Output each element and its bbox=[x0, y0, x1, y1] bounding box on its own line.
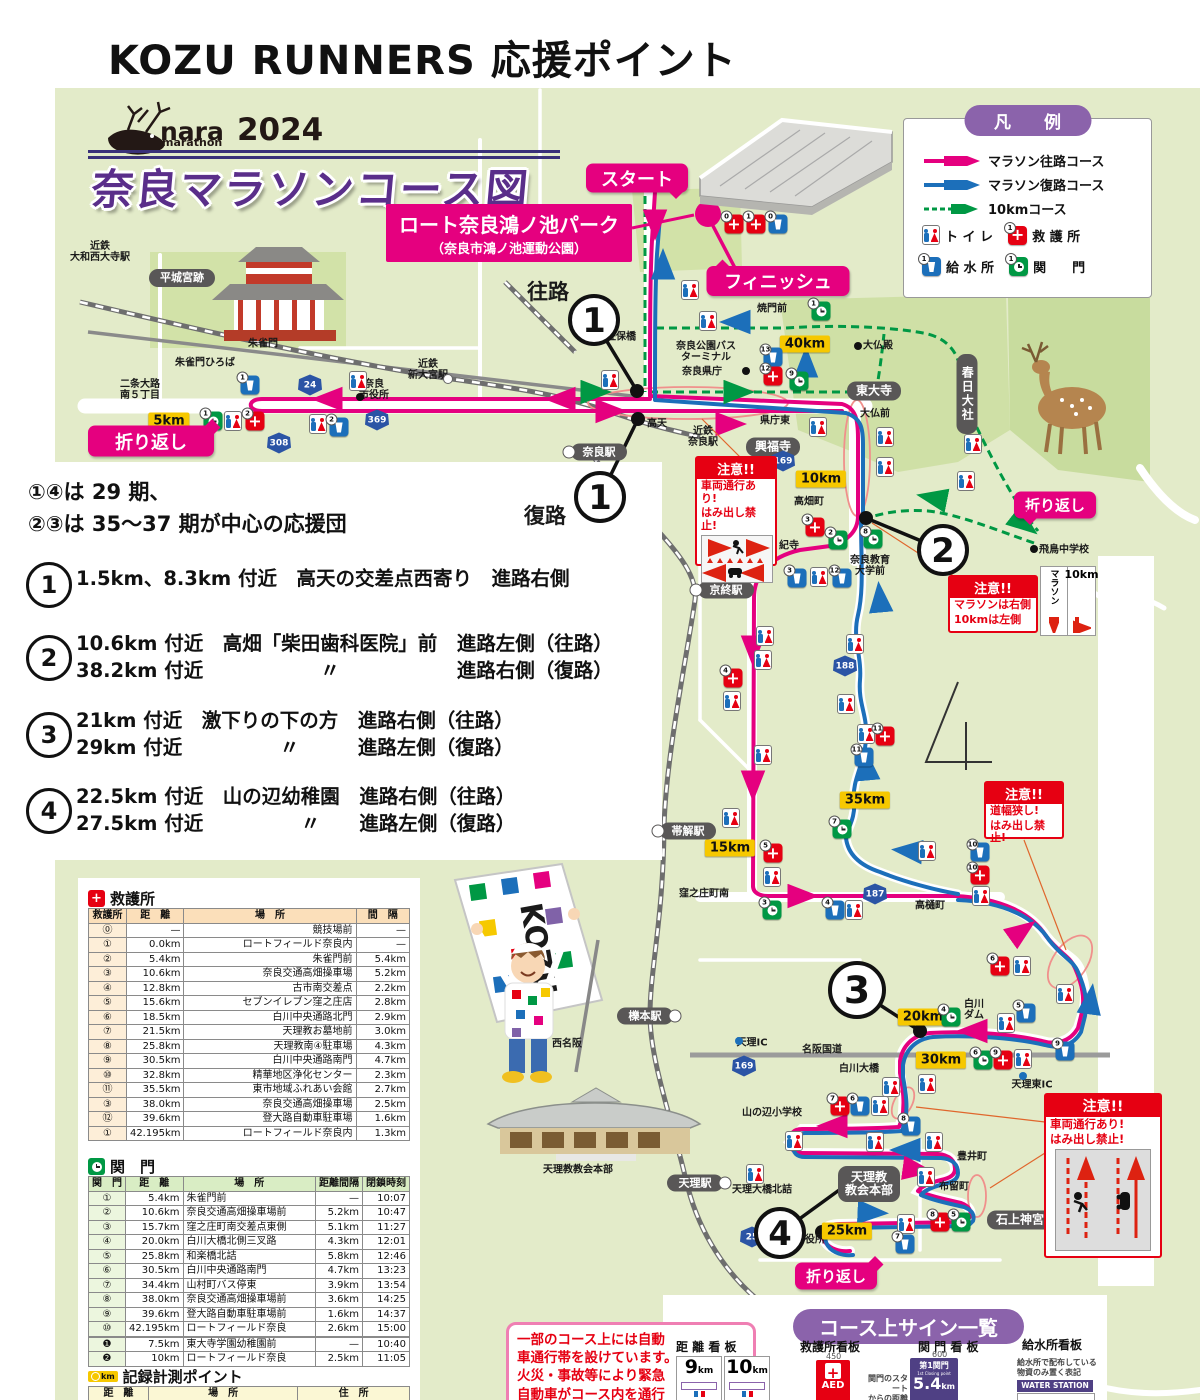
aid-station-icon: 1+ bbox=[1008, 226, 1027, 245]
map-label: 奈良公園バス ターミナル bbox=[676, 341, 736, 363]
toilet-icon bbox=[756, 626, 774, 646]
warning-title: 注意!! bbox=[950, 577, 1036, 598]
table-cell: 1.6km bbox=[316, 1307, 363, 1322]
record-point-icon: km bbox=[88, 1371, 118, 1382]
table-cell: 21.5km bbox=[126, 1025, 184, 1040]
water-station-icon: 6 bbox=[851, 1097, 870, 1116]
checkpoint-icon: 2 bbox=[829, 531, 848, 550]
toilet-icon bbox=[681, 280, 699, 300]
station-dot bbox=[669, 1010, 682, 1023]
poi-dot bbox=[356, 393, 364, 401]
table-row: ①5.4km朱雀門前—10:07 bbox=[89, 1191, 410, 1206]
table-cell: 窪之庄町南交差点東側 bbox=[183, 1220, 315, 1235]
table-cell: 10:40 bbox=[363, 1337, 410, 1352]
checkpoint-icon: 5 bbox=[952, 1213, 971, 1232]
table-title: 関 門 bbox=[88, 1156, 155, 1177]
table-cell: ロートフィールド奈良内 bbox=[184, 1126, 356, 1141]
toilet-icon bbox=[846, 634, 864, 654]
toilet-icon bbox=[871, 1096, 889, 1116]
km-badge: 35km bbox=[840, 792, 890, 809]
gate-sign-label: 関 門 看 板 bbox=[918, 1338, 979, 1355]
aid-table: 救護所距 離場 所間 隔⓪—競技場前—①0.0kmロートフィールド奈良内—②5.… bbox=[88, 908, 410, 1141]
toilet-icon bbox=[349, 371, 367, 391]
water-station-icon: 7 bbox=[896, 1235, 915, 1254]
table-cell: 登大路自動車駐車場前 bbox=[183, 1307, 315, 1322]
table-row: ⑩42.195kmロートフィールド奈良2.6km15:00 bbox=[89, 1322, 410, 1337]
course-flag-label: スタート bbox=[586, 164, 688, 193]
table-cell: 5.1km bbox=[316, 1220, 363, 1235]
table-cell: 13:23 bbox=[363, 1264, 410, 1279]
course-flag-label: フィニッシュ bbox=[707, 266, 850, 296]
table-cell: 2.5km bbox=[316, 1352, 363, 1367]
aid-station-icon: 10+ bbox=[971, 866, 990, 885]
warning-box-split: 注意!! マラソンは右側 10kmは左側 bbox=[948, 575, 1038, 633]
aid-station-icon: 5+ bbox=[764, 844, 783, 863]
table-cell: 白川大橋北側三叉路 bbox=[183, 1235, 315, 1250]
table-row: ⑫39.6km登大路自動車駐車場1.6km bbox=[89, 1112, 410, 1127]
table-cell: — bbox=[356, 923, 409, 938]
toilet-icon bbox=[876, 457, 894, 477]
toilet-icon bbox=[224, 411, 242, 431]
table-row: ⑧25.8km天理教南④駐車場4.3km bbox=[89, 1039, 410, 1054]
toilet-icon bbox=[809, 417, 827, 437]
table-cell: 11:05 bbox=[363, 1352, 410, 1367]
split-sign-10km: 10km bbox=[1064, 569, 1098, 580]
table-cell: ② bbox=[89, 952, 127, 967]
table-cell: 35.5km bbox=[126, 1083, 184, 1098]
map-label: 紀寺 bbox=[779, 540, 799, 551]
table-cell: 5.4km bbox=[126, 952, 184, 967]
toilet-icon bbox=[754, 745, 772, 765]
toilet-icon bbox=[601, 370, 619, 390]
table-cell: 12.8km bbox=[126, 981, 184, 996]
table-cell: 5.2km bbox=[356, 967, 409, 982]
nara-marathon-logo: nara marathon 2024 bbox=[160, 112, 323, 148]
table-cell: 1.3km bbox=[356, 1126, 409, 1141]
toilet-icon bbox=[917, 1167, 935, 1187]
split-sign-marathon: マラソン bbox=[1048, 569, 1061, 605]
map-label: 奈良県庁 bbox=[682, 366, 722, 377]
aid-station-icon: 4+ bbox=[724, 669, 743, 688]
table-cell: 古市南交差点 bbox=[184, 981, 356, 996]
distance-sign-10km: 10km bbox=[724, 1356, 770, 1400]
table-row: ①42.195kmロートフィールド奈良内1.3km bbox=[89, 1126, 410, 1141]
water-station-icon: 8 bbox=[902, 1117, 921, 1136]
warning-line: はみ出し禁止! bbox=[697, 506, 775, 533]
map-label: 名阪国道 bbox=[802, 1044, 842, 1055]
table-cell: 12:01 bbox=[363, 1235, 410, 1250]
table-cell: 5.8km bbox=[316, 1249, 363, 1264]
km-badge: 25km bbox=[822, 1223, 872, 1240]
map-label: 豊井町 bbox=[957, 1151, 987, 1162]
aid-station-icon: 6+ bbox=[991, 957, 1010, 976]
checkpoint-icon: 9 bbox=[790, 372, 809, 391]
toilet-icon bbox=[922, 225, 940, 245]
table-cell: ① bbox=[89, 1126, 127, 1141]
warning-title: 注意!! bbox=[986, 783, 1062, 804]
table-cell: 白川中央通路北門 bbox=[184, 1010, 356, 1025]
table-cell: 10.6km bbox=[126, 967, 184, 982]
table-cell: ① bbox=[89, 938, 127, 953]
table-cell: 13:54 bbox=[363, 1278, 410, 1293]
table-cell: ② bbox=[89, 1206, 126, 1221]
map-label: 窪之庄町南 bbox=[679, 888, 729, 899]
table-cell: 4.3km bbox=[356, 1039, 409, 1054]
warning-box-takama: 注意!! 車両通行あり! はみ出し禁止! bbox=[695, 456, 777, 566]
venue-name: ロート奈良鴻ノ池パーク bbox=[386, 209, 632, 238]
table-cell: 4.7km bbox=[356, 1054, 409, 1069]
table-row: ⑪35.5km東市地域ふれあい会館2.7km bbox=[89, 1083, 410, 1098]
table-cell: 山村町バス停東 bbox=[183, 1278, 315, 1293]
table-cell: ③ bbox=[89, 967, 127, 982]
km-badge: 10km bbox=[796, 471, 846, 488]
table-cell: 2.3km bbox=[356, 1068, 409, 1083]
table-cell: 18.5km bbox=[126, 1010, 184, 1025]
column-header: 関 門 bbox=[89, 1177, 126, 1192]
toilet-icon bbox=[837, 694, 855, 714]
table-cell: ⓪ bbox=[89, 923, 127, 938]
table-cell: 7.5km bbox=[126, 1337, 184, 1352]
toilet-icon bbox=[972, 886, 990, 906]
toilet-icon bbox=[785, 1131, 803, 1151]
table-row: ⑧38.0km奈良交通高畑操車場前3.6km14:25 bbox=[89, 1293, 410, 1308]
map-label: 飛鳥中学校 bbox=[1039, 544, 1089, 555]
poi-dot bbox=[854, 342, 862, 350]
table-row: ⑥30.5km白川中央通路南門4.7km13:23 bbox=[89, 1264, 410, 1279]
legend-box: 凡 例 マラソン往路コース マラソン復路コース 10kmコース ト イ レ 1+… bbox=[903, 118, 1152, 298]
table-cell: 2.7km bbox=[356, 1083, 409, 1098]
table-cell: 和楽橋北詰 bbox=[183, 1249, 315, 1264]
table-cell: 5.2km bbox=[316, 1206, 363, 1221]
aid-station-icon: 1+ bbox=[747, 215, 766, 234]
table-cell: 2.8km bbox=[356, 996, 409, 1011]
column-header: 距 離 bbox=[126, 909, 184, 924]
table-cell: 10km bbox=[126, 1352, 184, 1367]
table-cell: ⑦ bbox=[89, 1025, 127, 1040]
aid-station-icon: 12+ bbox=[764, 367, 783, 386]
map-label: 高天 bbox=[647, 418, 667, 429]
table-row: ③10.6km奈良交通高畑操車場5.2km bbox=[89, 967, 410, 982]
toilet-icon bbox=[997, 1013, 1015, 1033]
gate-sign: 第1関門 1st Closing point 5.4km bbox=[910, 1358, 958, 1400]
place-plate: 天理教 教会本部 bbox=[838, 1166, 900, 1202]
poi-dot bbox=[1019, 1072, 1027, 1080]
table-row: ①0.0kmロートフィールド奈良内— bbox=[89, 938, 410, 953]
toilet-icon bbox=[763, 867, 781, 887]
water-sign-label: 給水所看板 bbox=[1022, 1336, 1082, 1353]
vertical-lane-pictogram bbox=[1055, 1149, 1151, 1251]
poi-dot bbox=[1030, 545, 1038, 553]
table-cell: ⑥ bbox=[89, 1010, 127, 1025]
cheer-point-circle: 1 bbox=[568, 294, 620, 346]
table-cell: — bbox=[316, 1337, 363, 1352]
water-station-icon: 3 bbox=[788, 569, 807, 588]
water-station-icon: 12 bbox=[833, 569, 852, 588]
split-sign: マラソン 10km bbox=[1040, 566, 1096, 636]
map-label: 天理教教会本部 bbox=[543, 1164, 613, 1175]
table-cell: 39.6km bbox=[126, 1307, 184, 1322]
warning-title: 注意!! bbox=[1046, 1095, 1160, 1117]
warning-line: はみ出し禁止! bbox=[986, 819, 1062, 846]
toilet-icon bbox=[1056, 984, 1074, 1004]
table-cell: 42.195km bbox=[126, 1126, 184, 1141]
column-header: 救護所 bbox=[89, 909, 127, 924]
gate-sign-note: 関門のスタートからの距離 bbox=[862, 1374, 908, 1400]
logo-marathon: marathon bbox=[162, 136, 222, 149]
table-cell: 5.4km bbox=[126, 1191, 184, 1206]
cheer-point-circle: 1 bbox=[574, 471, 626, 523]
table-cell: 38.0km bbox=[126, 1293, 184, 1308]
table-cell: ⑩ bbox=[89, 1322, 126, 1337]
direction-label: 復路 bbox=[524, 505, 566, 529]
table-cell: 30.5km bbox=[126, 1264, 184, 1279]
table-cell: 15.7km bbox=[126, 1220, 184, 1235]
turn-right-arrow-icon bbox=[1073, 615, 1091, 633]
table-cell: 39.6km bbox=[126, 1112, 184, 1127]
map-label: 白川 ダム bbox=[964, 999, 984, 1021]
blue-arrow-icon bbox=[922, 180, 980, 190]
column-header: 場 所 bbox=[148, 1387, 297, 1400]
table-cell: 1.6km bbox=[356, 1112, 409, 1127]
table-cell: ⑪ bbox=[89, 1083, 127, 1098]
aid-station-icon: 9+ bbox=[994, 1051, 1013, 1070]
aid-station-icon: 3+ bbox=[806, 518, 825, 537]
table-cell: 20.0km bbox=[126, 1235, 184, 1250]
warning-line: マラソンは右側 bbox=[950, 598, 1036, 613]
table-cell: 2.6km bbox=[316, 1322, 363, 1337]
table-cell: 天理教南④駐車場 bbox=[184, 1039, 356, 1054]
table-cell: 15:00 bbox=[363, 1322, 410, 1337]
table-cell: 0.0km bbox=[126, 938, 184, 953]
water-station-icon: 4 bbox=[826, 901, 845, 920]
aid-station-icon: 11+ bbox=[876, 727, 895, 746]
table-cell: ⑧ bbox=[89, 1039, 127, 1054]
table-cell: 15.6km bbox=[126, 996, 184, 1011]
map-label: 白川大橋 bbox=[839, 1063, 879, 1074]
table-cell: 30.5km bbox=[126, 1054, 184, 1069]
table-cell: 25.8km bbox=[126, 1249, 184, 1264]
table-cell: ⑨ bbox=[89, 1054, 127, 1069]
warning-line: はみ出し禁止! bbox=[1046, 1132, 1160, 1147]
station-dot bbox=[719, 1177, 732, 1190]
water-sign-body bbox=[1017, 1393, 1095, 1400]
water-station-icon: 1 bbox=[922, 257, 941, 276]
table-cell: 25.8km bbox=[126, 1039, 184, 1054]
checkpoint-icon: 4 bbox=[942, 1008, 961, 1027]
warning-line: 車両通行あり! bbox=[697, 479, 775, 506]
warning-line: 車両通行あり! bbox=[1046, 1117, 1160, 1132]
water-station-icon: 11 bbox=[855, 748, 874, 767]
logo-rule-1 bbox=[88, 150, 560, 153]
checkpoint-icon: 7 bbox=[833, 820, 852, 839]
column-header: 閉鎖時刻 bbox=[363, 1177, 410, 1192]
water-sign-note: 給水所で配布している物資のみ置く表記 bbox=[1017, 1358, 1097, 1378]
green-dashed-arrow-icon bbox=[922, 204, 980, 214]
water-station-bar: WATER STATION bbox=[1017, 1380, 1093, 1392]
table-row: ⑦21.5km天理教お墓地前3.0km bbox=[89, 1025, 410, 1040]
place-plate: 春日大社 bbox=[957, 354, 978, 434]
map-label: 奈良教育 大学前 bbox=[850, 555, 890, 577]
map-label: 大仏殿 bbox=[863, 340, 893, 351]
table-cell: 天理教お墓地前 bbox=[184, 1025, 356, 1040]
table-cell: 10:47 bbox=[363, 1206, 410, 1221]
map-label: 県庁東 bbox=[760, 415, 790, 426]
table-title: +救護所 bbox=[88, 888, 155, 909]
place-plate: 平城宮跡 bbox=[149, 269, 215, 287]
table-cell: 2.2km bbox=[356, 981, 409, 996]
toilet-icon bbox=[957, 471, 975, 491]
table-cell: 奈良交通高畑操車場 bbox=[184, 967, 356, 982]
place-plate: 興福寺 bbox=[746, 438, 800, 457]
down-arrow-icon bbox=[1049, 617, 1059, 633]
table-cell: ⑥ bbox=[89, 1264, 126, 1279]
course-flag-label: 折り返し bbox=[1014, 492, 1096, 519]
table-cell: 精華地区浄化センター bbox=[184, 1068, 356, 1083]
map-label: 近鉄 新大宮駅 bbox=[408, 359, 448, 381]
map-label: 山の辺小学校 bbox=[742, 1107, 802, 1118]
map-label: 布留町 bbox=[939, 1181, 969, 1192]
aed-sign: + AED bbox=[816, 1360, 850, 1400]
table-cell: 32.8km bbox=[126, 1068, 184, 1083]
toilet-icon bbox=[964, 434, 982, 454]
poi-dot bbox=[735, 1037, 743, 1045]
aid-station-icon: 0+ bbox=[725, 215, 744, 234]
place-plate: 奈良駅 bbox=[571, 444, 627, 461]
table-cell: 登大路自動車駐車場 bbox=[184, 1112, 356, 1127]
table-cell: ⑩ bbox=[89, 1068, 127, 1083]
legend-item-label: マラソン往路コース bbox=[988, 151, 1104, 170]
legend-toilet-label: ト イ レ bbox=[945, 226, 993, 245]
route-shield: 188 bbox=[833, 656, 857, 677]
table-cell: 朱雀門前 bbox=[183, 1191, 315, 1206]
toilet-icon bbox=[723, 691, 741, 711]
table-cell: ① bbox=[89, 1191, 126, 1206]
station-dot bbox=[652, 825, 665, 838]
place-plate: 東大寺 bbox=[847, 382, 901, 401]
table-row: ③15.7km窪之庄町南交差点東側5.1km11:27 bbox=[89, 1220, 410, 1235]
warning-box-narrow: 注意!! 道幅狭し! はみ出し禁止! bbox=[984, 781, 1064, 839]
table-cell: ❷ bbox=[89, 1352, 126, 1367]
legend-aid-label: 救 護 所 bbox=[1032, 226, 1080, 245]
column-header: 距 離 bbox=[126, 1177, 184, 1192]
cheer-point-circle: 4 bbox=[754, 1207, 806, 1259]
route-shield: 187 bbox=[863, 884, 887, 905]
map-label: 高畑町 bbox=[794, 496, 824, 507]
table-cell: ⑤ bbox=[89, 996, 127, 1011]
table-cell: ロートフィールド奈良 bbox=[183, 1352, 315, 1367]
map-label: 高樋町 bbox=[915, 900, 945, 911]
table-row: ④12.8km古市南交差点2.2km bbox=[89, 981, 410, 996]
table-cell: 3.6km bbox=[316, 1293, 363, 1308]
toilet-icon bbox=[699, 311, 717, 331]
table-row: ⑤15.6kmセブンイレブン窪之庄店2.8km bbox=[89, 996, 410, 1011]
table-row: ⑦34.4km山村町バス停東3.9km13:54 bbox=[89, 1278, 410, 1293]
column-header: 間 隔 bbox=[356, 909, 409, 924]
table-cell: 奈良交通高畑操車場前 bbox=[183, 1293, 315, 1308]
table-cell: ⑦ bbox=[89, 1278, 126, 1293]
warning-box-vehicles: 注意!! 車両通行あり! はみ出し禁止! bbox=[1044, 1093, 1162, 1258]
checkpoint-icon: 1 bbox=[812, 302, 831, 321]
gate-icon bbox=[88, 1158, 105, 1175]
table-cell: 東大寺学園幼稚園前 bbox=[183, 1337, 315, 1352]
table-cell: 10:07 bbox=[363, 1191, 410, 1206]
map-label: 朱雀門 bbox=[248, 338, 278, 349]
table-row: ❶7.5km東大寺学園幼稚園前—10:40 bbox=[89, 1337, 410, 1352]
toilet-icon bbox=[1014, 1049, 1032, 1069]
venue-subname: （奈良市鴻ノ池運動公園） bbox=[386, 238, 632, 257]
table-cell: ③ bbox=[89, 1097, 127, 1112]
map-label: 西名阪 bbox=[552, 1038, 582, 1049]
toilet-icon bbox=[882, 1077, 900, 1097]
checkpoint-icon: 3 bbox=[763, 901, 782, 920]
direction-label: 往路 bbox=[527, 281, 569, 305]
table-title: km記録計測ポイント bbox=[88, 1366, 243, 1387]
poi-dot bbox=[742, 367, 750, 375]
map-label: 二条大路 南５丁目 bbox=[120, 379, 160, 401]
km-badge: 15km bbox=[705, 840, 755, 857]
column-header: 場 所 bbox=[184, 909, 356, 924]
table-cell: 2.5km bbox=[356, 1097, 409, 1112]
table-cell: 競技場前 bbox=[184, 923, 356, 938]
table-cell: 5.4km bbox=[356, 952, 409, 967]
table-cell: 奈良交通高畑操車場 bbox=[184, 1097, 356, 1112]
table-cell: ④ bbox=[89, 1235, 126, 1250]
toilet-icon bbox=[1013, 956, 1031, 976]
table-cell: ロートフィールド奈良 bbox=[183, 1322, 315, 1337]
legend-item-label: マラソン復路コース bbox=[988, 175, 1104, 194]
table-row: ②10.6km奈良交通高畑操車場前5.2km10:47 bbox=[89, 1206, 410, 1221]
checkpoint-icon: 1 bbox=[1009, 257, 1028, 276]
table-cell: ⑧ bbox=[89, 1293, 126, 1308]
table-cell: 42.195km bbox=[126, 1322, 184, 1337]
table-cell: 2.9km bbox=[356, 1010, 409, 1025]
table-cell: — bbox=[126, 923, 184, 938]
table-cell: 東市地域ふれあい会館 bbox=[184, 1083, 356, 1098]
water-station-icon: 1 bbox=[241, 376, 260, 395]
table-cell: 奈良交通高畑操車場前 bbox=[183, 1206, 315, 1221]
water-station-icon: 2 bbox=[330, 418, 349, 437]
table-cell: 朱雀門前 bbox=[184, 952, 356, 967]
course-flag-label: 折り返し bbox=[88, 426, 214, 457]
table-row: ⑥18.5km白川中央通路北門2.9km bbox=[89, 1010, 410, 1025]
table-cell: 14:25 bbox=[363, 1293, 410, 1308]
table-row: ⑨30.5km白川中央通路南門4.7km bbox=[89, 1054, 410, 1069]
table-cell: 3.9km bbox=[316, 1278, 363, 1293]
toilet-icon bbox=[876, 427, 894, 447]
poster: KOZU RUNNERS 応援ポイント bbox=[0, 0, 1200, 1400]
runner-car-pictogram bbox=[701, 535, 773, 583]
toilet-icon bbox=[722, 808, 740, 828]
table-cell: ⑫ bbox=[89, 1112, 127, 1127]
rec-table: 距 離場 所住 所 bbox=[88, 1386, 410, 1400]
logo-year: 2024 bbox=[237, 112, 323, 148]
km-badge: 30km bbox=[916, 1052, 966, 1069]
map-label: 近鉄 大和西大寺駅 bbox=[70, 241, 130, 263]
table-cell: ④ bbox=[89, 981, 127, 996]
map-label: 大仏前 bbox=[860, 408, 890, 419]
column-header: 距 離 bbox=[89, 1387, 149, 1400]
table-row: ③38.0km奈良交通高畑操車場2.5km bbox=[89, 1097, 410, 1112]
route-shield: 369 bbox=[365, 410, 389, 431]
place-plate: 帯解駅 bbox=[660, 823, 716, 840]
checkpoint-icon: 8 bbox=[864, 530, 883, 549]
table-cell: 4.3km bbox=[316, 1235, 363, 1250]
aid-station-icon: 2+ bbox=[246, 412, 265, 431]
water-station-icon: 5 bbox=[1017, 1004, 1036, 1023]
table-row: ⑩32.8km精華地区浄化センター2.3km bbox=[89, 1068, 410, 1083]
pink-arrow-icon bbox=[922, 156, 980, 166]
table-row: ⓪—競技場前— bbox=[89, 923, 410, 938]
